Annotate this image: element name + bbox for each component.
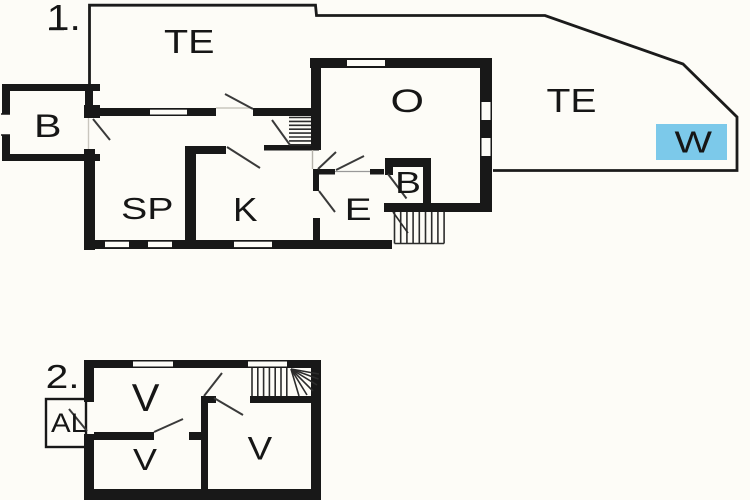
svg-text:B: B xyxy=(34,108,62,144)
svg-text:SP: SP xyxy=(121,191,174,226)
svg-text:V: V xyxy=(133,442,157,477)
svg-text:O: O xyxy=(391,83,425,119)
svg-text:TE: TE xyxy=(547,82,597,119)
svg-text:W: W xyxy=(675,125,713,160)
svg-text:TE: TE xyxy=(164,23,215,60)
svg-text:V: V xyxy=(248,431,273,467)
svg-text:V: V xyxy=(132,377,160,420)
svg-text:B: B xyxy=(395,165,421,200)
svg-text:AL: AL xyxy=(51,408,87,438)
svg-text:E: E xyxy=(345,191,372,227)
svg-text:2.: 2. xyxy=(46,358,80,395)
svg-text:1.: 1. xyxy=(47,0,81,38)
svg-text:K: K xyxy=(233,191,258,228)
